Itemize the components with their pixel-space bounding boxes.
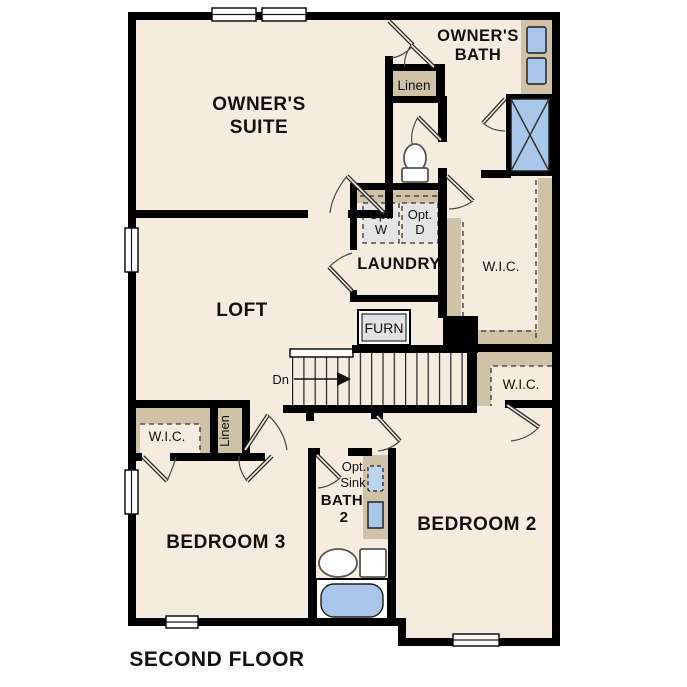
floor-title: SECOND FLOOR: [129, 648, 304, 671]
stairs-dn-label: Dn: [272, 372, 289, 387]
floor-plan-drawing: OWNER'SSUITE OWNER'SBATH Linen LOFT LAUN…: [0, 0, 687, 687]
floor-plan-page: OWNER'SSUITE OWNER'SBATH Linen LOFT LAUN…: [0, 0, 687, 687]
laundry-label: LAUNDRY: [357, 255, 441, 273]
bedroom2-label: BEDROOM 2: [417, 514, 537, 535]
owners-bath-sink-1: [527, 27, 546, 53]
staircase: [290, 349, 472, 405]
owners-bath-sink-2: [527, 58, 546, 84]
bedroom2-wic-label: W.I.C.: [503, 377, 540, 392]
loft-window: [125, 228, 138, 272]
bedroom2-wic-shelf-left: [477, 352, 491, 406]
bath2-sink: [368, 502, 383, 528]
bedroom3-label: BEDROOM 3: [166, 532, 286, 553]
owners-bath-shower: [506, 94, 554, 176]
loft-label: LOFT: [216, 300, 268, 321]
stair-handrail: [290, 349, 353, 357]
owners-suite-window-2: [262, 8, 306, 21]
bath2-tub: [316, 579, 388, 622]
bath2-optional-sink: [368, 466, 383, 491]
owners-wic-shelf-right: [538, 178, 552, 344]
furnace-label: FURN: [365, 320, 404, 336]
owners-suite-window-1: [212, 8, 256, 21]
bedroom3-bottom-window: [166, 616, 198, 628]
owners-wic-shelf-left: [447, 218, 461, 316]
opt-sink-label: Opt.Sink: [340, 459, 366, 490]
bedroom3-linen-label: Linen: [217, 415, 232, 447]
bedroom3-side-window: [125, 470, 138, 514]
bath2-toilet: [319, 549, 386, 577]
bedroom2-bottom-window: [453, 634, 499, 646]
owners-bath-toilet: [402, 144, 428, 182]
hall-linen-label: Linen: [397, 78, 430, 93]
bedroom3-wic-label: W.I.C.: [149, 429, 186, 444]
owners-wic-label: W.I.C.: [483, 259, 520, 274]
